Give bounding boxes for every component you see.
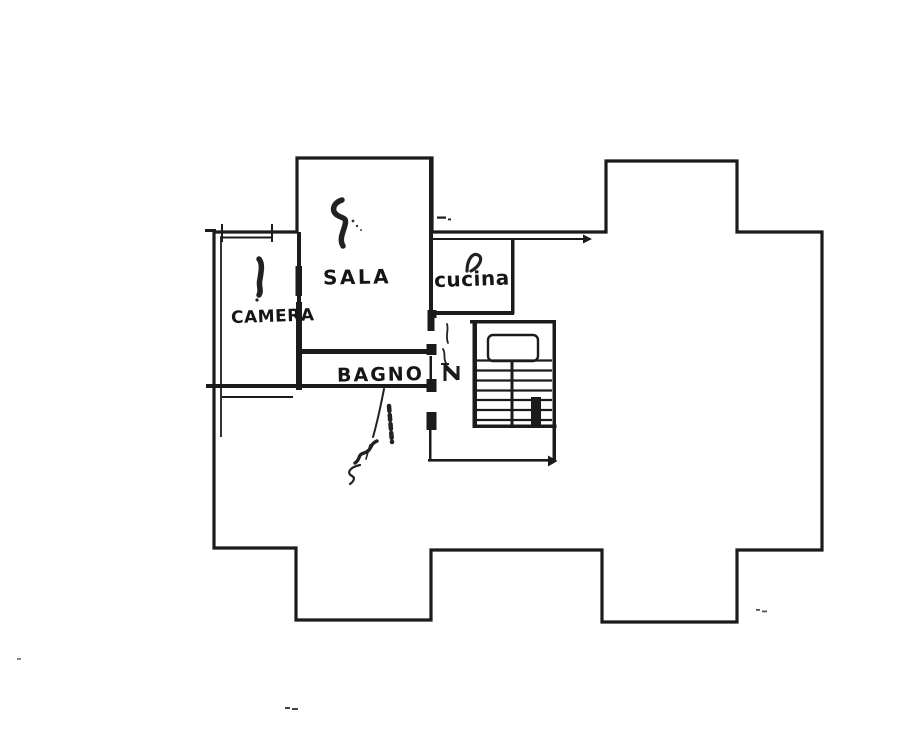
room-label-bagno: BAGNO	[337, 363, 424, 387]
wall-cucina-right	[511, 240, 515, 314]
door-symbol	[441, 363, 460, 381]
sala-pencil-dot	[356, 225, 358, 227]
door-symbol-diagonal	[445, 366, 458, 379]
camera-pencil-squiggle	[259, 259, 261, 295]
stair-scribble-lower	[443, 349, 446, 363]
corridor-wall-mid-block	[427, 412, 437, 430]
room-label-sala: SALA	[323, 264, 392, 289]
noise-speck	[762, 611, 767, 613]
wall-cucina-bottom	[429, 311, 514, 315]
top-wall-overhang-tick	[205, 229, 216, 232]
floor-plan-drawing: CAMERA SALA CUCINA BAGNO	[0, 0, 906, 738]
bagno-diagonal-stroke	[373, 389, 384, 437]
pencil-annotations	[255, 200, 480, 484]
room-labels: CAMERA SALA CUCINA BAGNO	[231, 264, 510, 386]
scanned-floor-plan-page: CAMERA SALA CUCINA BAGNO	[0, 0, 906, 738]
corridor-wall-lower-thin	[429, 430, 432, 461]
stair-bottom-wall	[473, 425, 557, 429]
wall-sala-right	[429, 158, 433, 318]
stair-lobby-bottom-line	[428, 459, 554, 462]
windows	[222, 224, 592, 244]
wall-bagno-top	[300, 349, 433, 354]
ledge-line-below-camera	[222, 396, 293, 398]
noise-speck	[756, 609, 760, 611]
wall-bagno-top-end-block	[427, 344, 437, 355]
noise-speck	[292, 708, 298, 710]
stair-left-wall	[473, 320, 478, 428]
wall-bagno-bottom-end-block	[427, 379, 437, 392]
camera-pencil-dot	[255, 298, 258, 301]
noise-speck	[285, 707, 290, 709]
scan-noise	[17, 609, 767, 710]
dashed-pencil-column	[389, 406, 392, 442]
stair-landing-well	[488, 335, 538, 361]
noise-speck	[17, 658, 21, 660]
stair-center-divider	[511, 360, 514, 427]
wall-camera-sala-blob	[296, 266, 303, 296]
stair-right-wall	[553, 320, 557, 462]
sala-pencil-dot	[352, 220, 355, 223]
sala-pencil-squiggle	[334, 200, 346, 246]
sala-pencil-dot	[360, 229, 362, 231]
stair-enclosure-top-wall	[470, 320, 556, 324]
stair-solid-marker	[531, 397, 541, 427]
small-dash-mark	[437, 217, 446, 219]
room-label-camera: CAMERA	[231, 305, 315, 328]
wall-bagno-right-thin	[430, 356, 433, 380]
small-dot-mark	[448, 219, 451, 221]
lower-curl-scribble	[349, 465, 360, 484]
direction-arrow	[583, 235, 592, 244]
stair-scribble-upper	[447, 324, 448, 343]
corridor-wall-top-block	[428, 318, 435, 331]
